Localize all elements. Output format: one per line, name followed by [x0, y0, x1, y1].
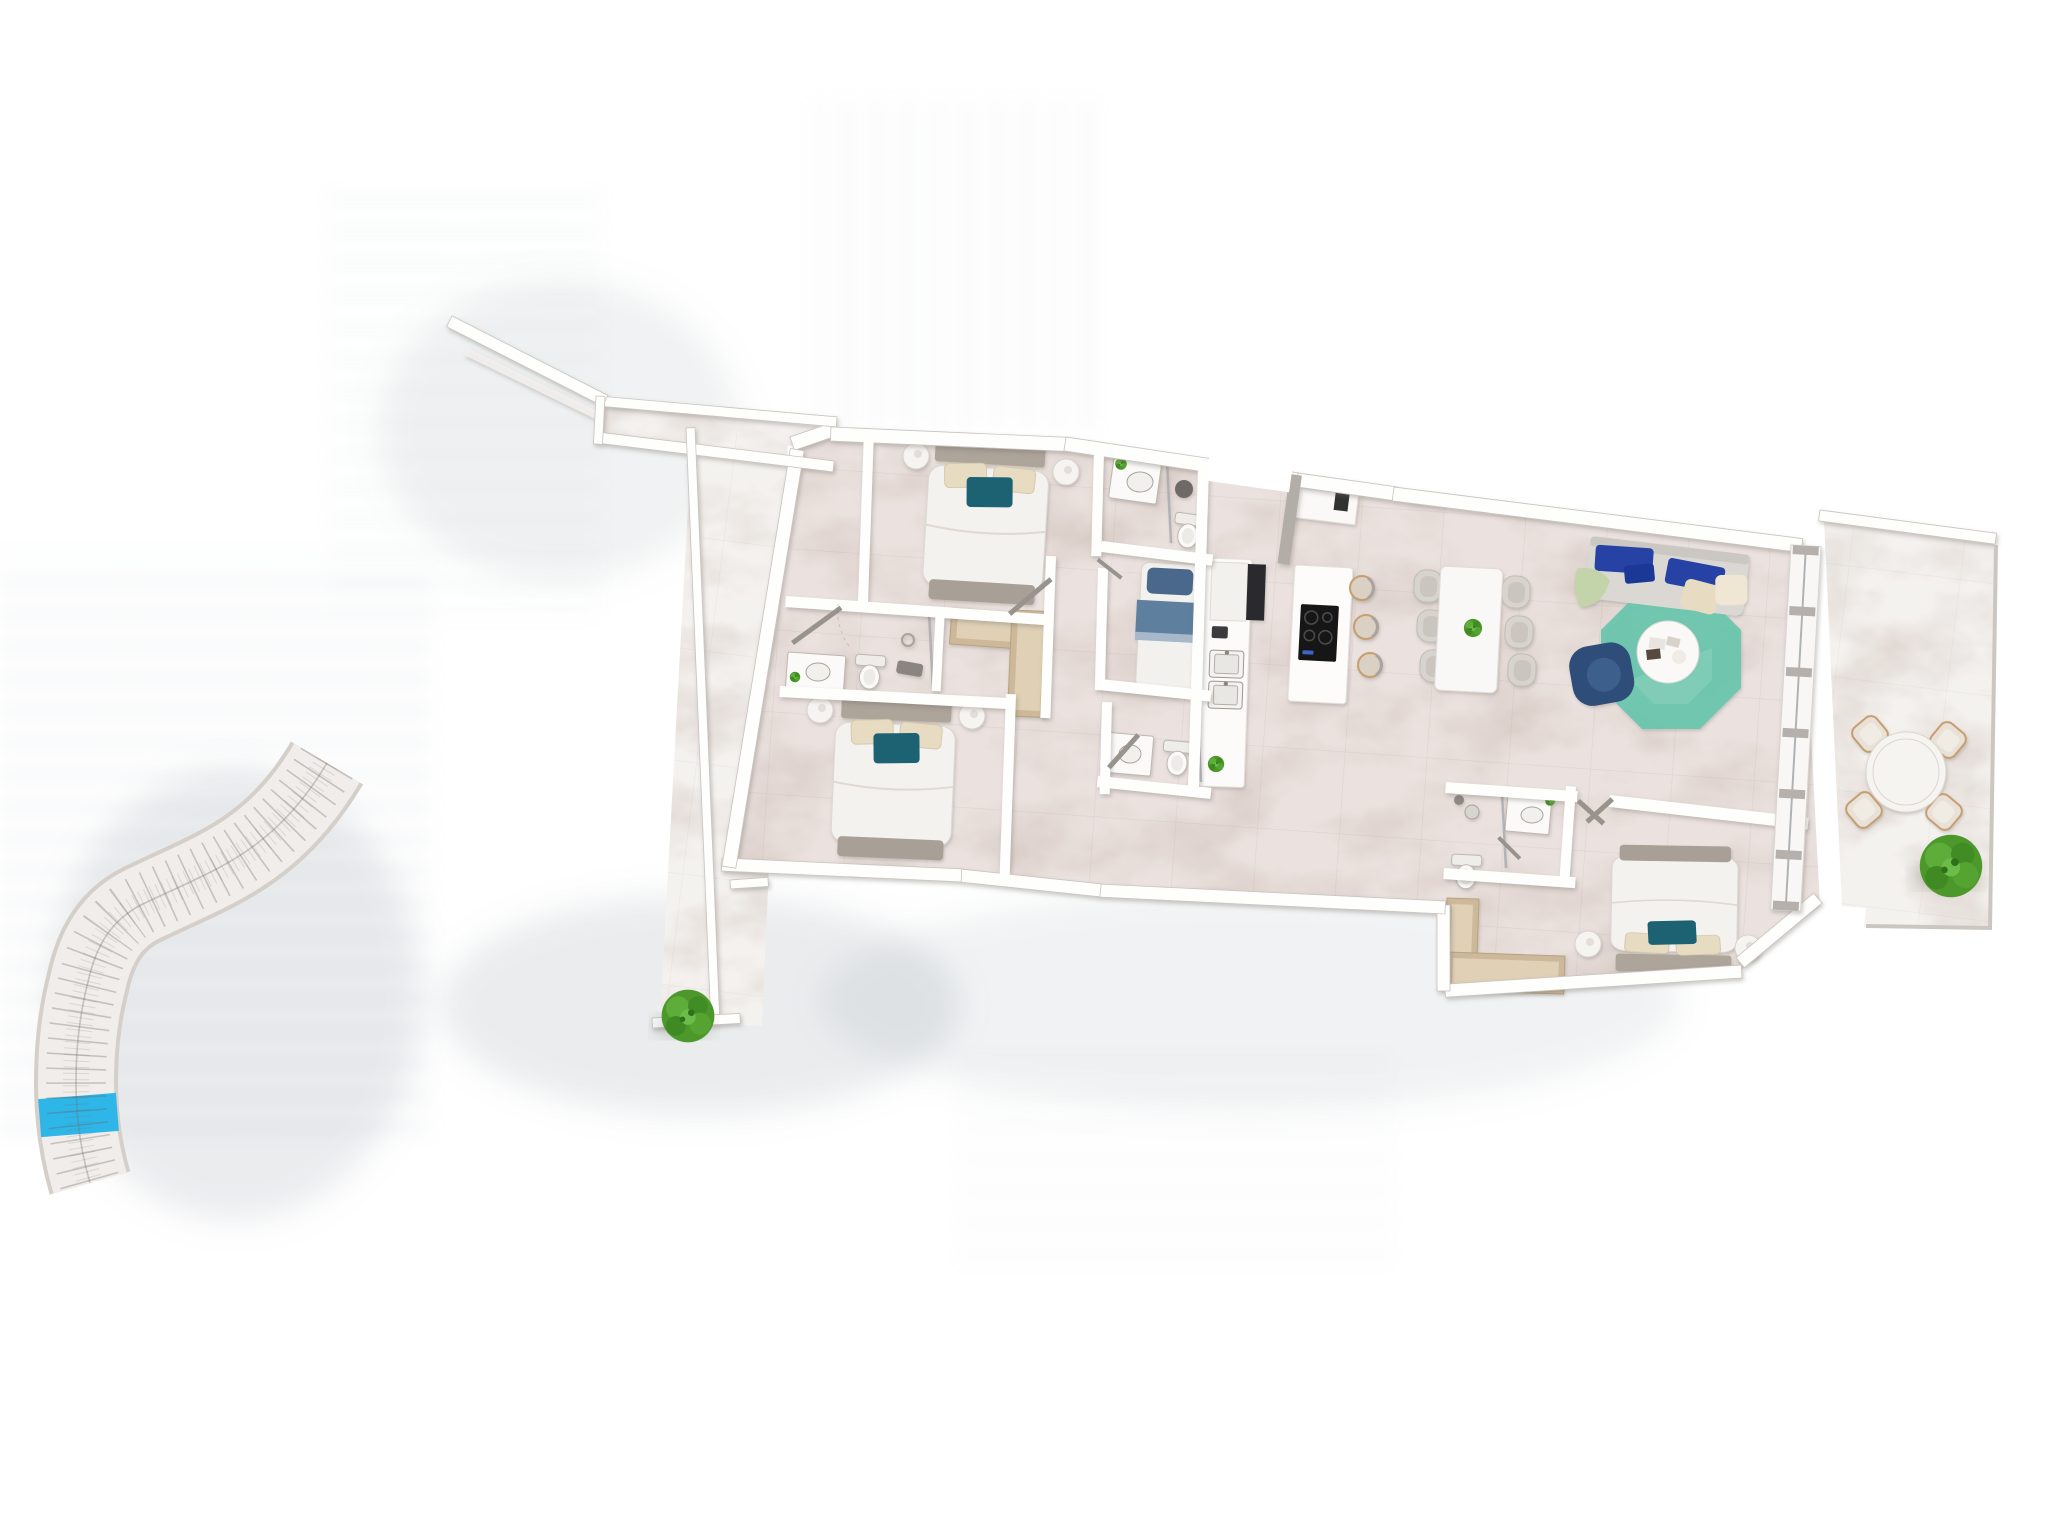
small-appliance — [1212, 626, 1228, 639]
dining-chair — [1413, 569, 1443, 602]
scene — [0, 0, 2048, 1536]
hob-display — [1302, 650, 1313, 655]
table-plant — [1464, 619, 1482, 637]
mullion — [1779, 789, 1805, 799]
nightstand — [807, 697, 833, 723]
floor-light — [1454, 795, 1464, 805]
shower-drain — [1175, 480, 1193, 498]
plant — [790, 672, 801, 683]
mullion — [1786, 667, 1812, 677]
nightstand — [1053, 459, 1079, 485]
bar-stool — [1358, 653, 1382, 677]
round-table — [1866, 732, 1946, 812]
induction-hob — [1298, 604, 1339, 662]
bush — [662, 990, 715, 1043]
bush — [1920, 835, 1982, 897]
exterior-wall — [1437, 905, 1450, 991]
counter-plant — [1208, 756, 1224, 772]
shower-drain — [1465, 805, 1479, 819]
nightstand — [1575, 931, 1601, 957]
basin — [1127, 472, 1153, 492]
book — [1646, 649, 1661, 660]
mullion — [1782, 728, 1808, 738]
dining-area — [1413, 566, 1537, 693]
sofa-pillow-blue — [1624, 563, 1656, 584]
coffee-table — [1637, 621, 1699, 683]
basin — [1521, 807, 1543, 823]
mullion — [1789, 606, 1815, 616]
mullion — [1773, 901, 1799, 911]
tray — [1672, 650, 1686, 664]
fridge — [1246, 564, 1266, 621]
basin — [806, 663, 830, 681]
bar-stool — [1350, 576, 1374, 600]
nightstand — [903, 443, 929, 469]
dining-chair — [1501, 575, 1531, 608]
dining-chair — [1507, 653, 1537, 686]
book — [1648, 637, 1665, 650]
mullion — [1792, 545, 1818, 555]
sofa-pillow-beige — [1715, 575, 1747, 605]
mullion — [1775, 850, 1801, 860]
dining-chair — [1504, 615, 1534, 648]
tall-cabinet — [1210, 562, 1248, 621]
bar-stool — [1354, 615, 1378, 639]
